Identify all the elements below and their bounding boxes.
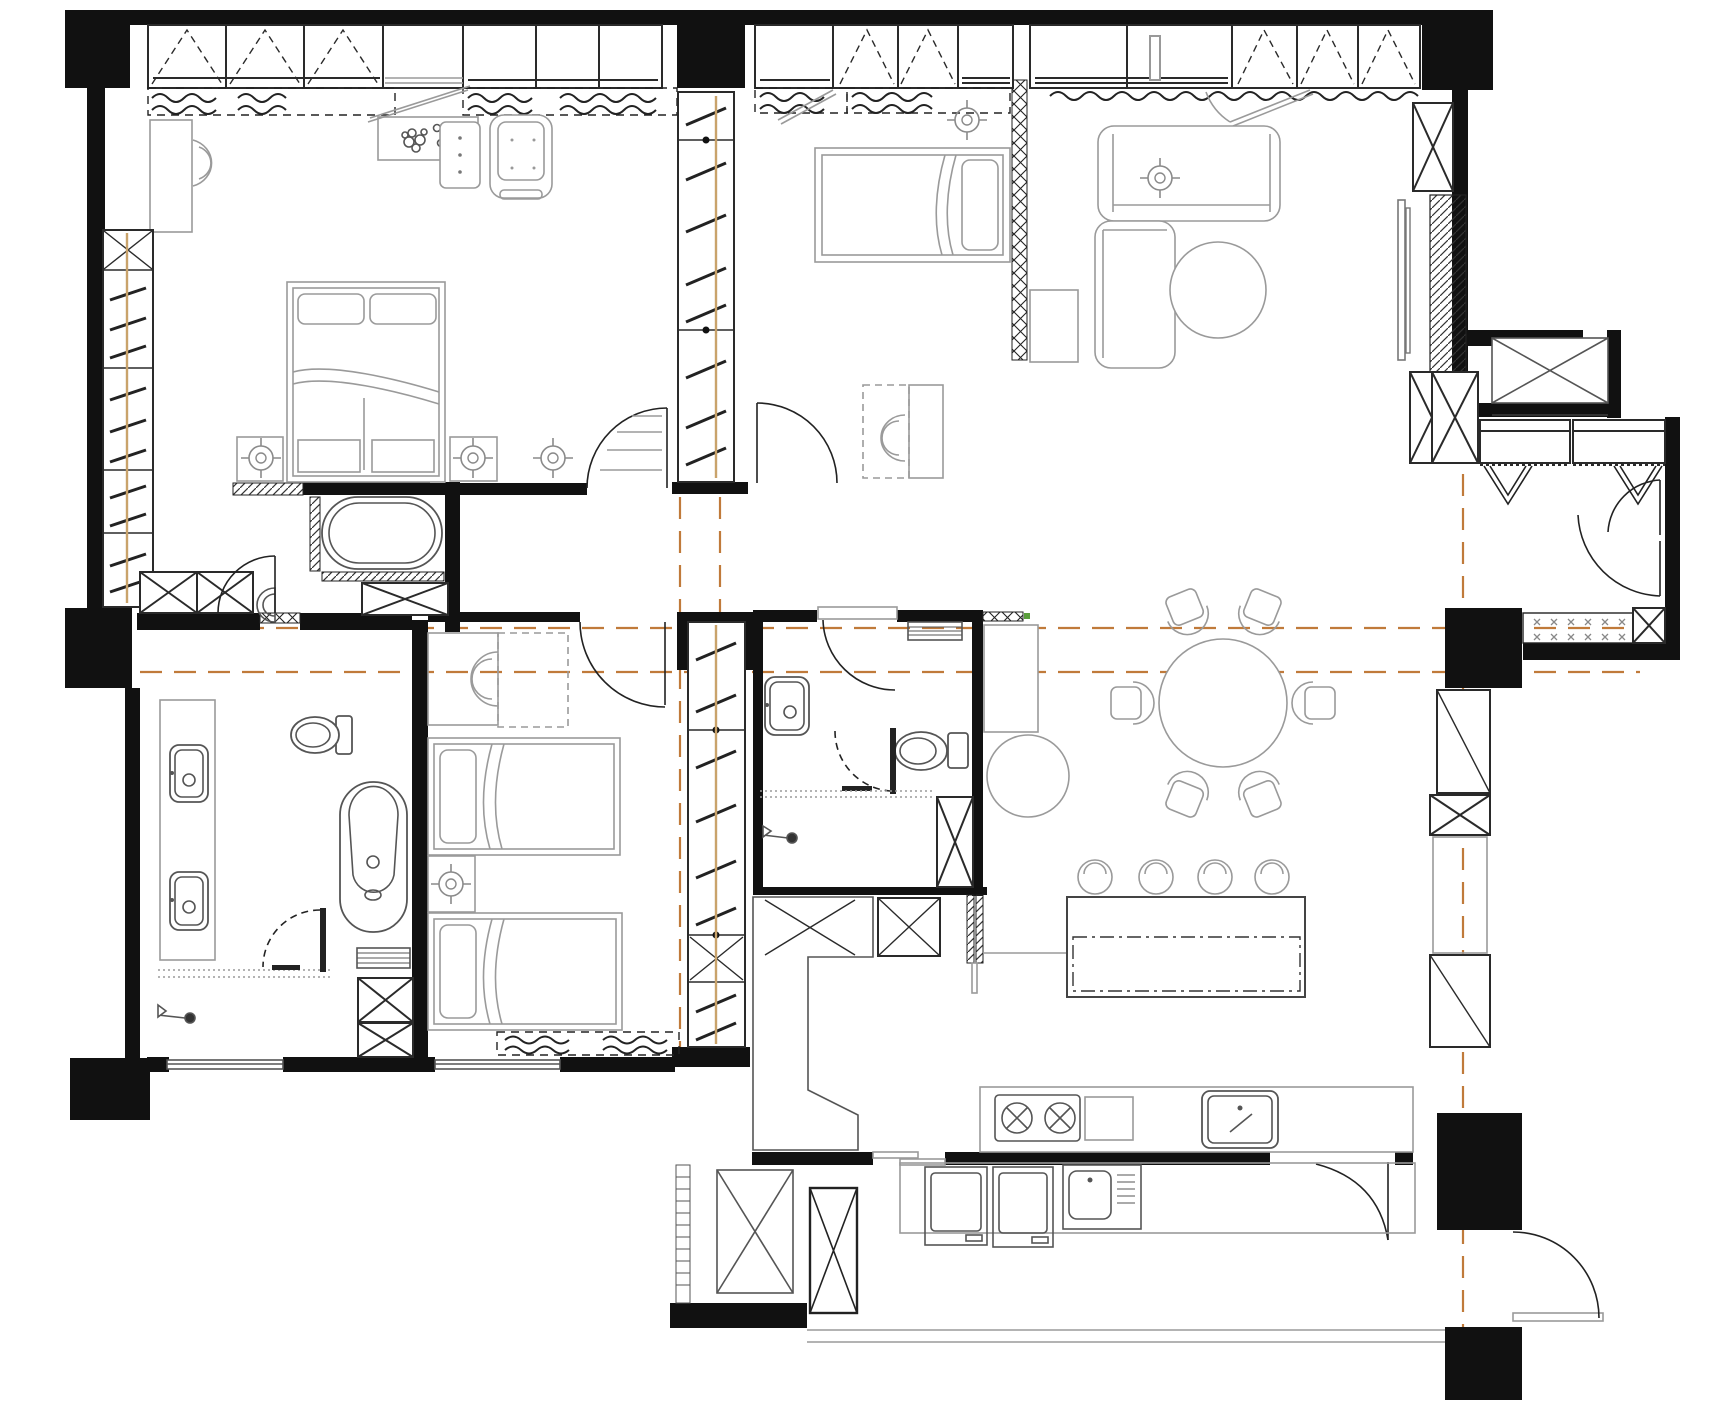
single-bed-bedroom2	[815, 148, 1010, 262]
central-sink	[765, 677, 809, 735]
entry-side-crossed-box	[1432, 372, 1478, 463]
vanity-sink-1	[170, 745, 208, 802]
bedroom2-low-cabinet	[1030, 290, 1078, 362]
room-dining	[984, 585, 1335, 820]
hob	[995, 1095, 1080, 1141]
hatched-media-wall	[1430, 195, 1466, 373]
central-bath-door	[818, 607, 897, 690]
toilet-bathroom2	[291, 716, 352, 754]
twin-bed-a	[428, 738, 620, 855]
bedroom2-desk	[863, 385, 943, 478]
bath-crossed-cabinet-row	[140, 572, 253, 613]
island-counter	[1067, 897, 1305, 997]
nightstand-left	[237, 437, 283, 481]
central-toilet	[895, 732, 968, 770]
bedroom2-door	[757, 403, 837, 483]
shoe-cabinet-left	[1480, 420, 1570, 465]
master-louver-door	[587, 408, 667, 488]
shower-head-2	[158, 1005, 195, 1023]
shoe-cabinet-right	[1573, 420, 1665, 465]
bar-stools	[1078, 860, 1289, 894]
living-window-run	[1030, 25, 1420, 88]
room-master-bathroom	[140, 497, 448, 622]
lattice-partition-upper	[678, 92, 734, 482]
twin-desk	[428, 633, 568, 727]
utility-crossed-cabinet-large	[717, 1170, 793, 1293]
vanity-sink-2	[170, 872, 208, 930]
freestanding-tub	[340, 782, 407, 932]
double-entry-door	[1578, 480, 1660, 596]
bedroom2-wardrobe	[755, 25, 1013, 88]
lattice-partition-lower	[688, 622, 745, 1047]
tv-panel	[1398, 200, 1410, 360]
upper-crossed-cabinets	[765, 898, 940, 956]
ladder-strip	[676, 1165, 690, 1303]
dresser	[440, 122, 480, 188]
entry-crossed-box	[1633, 608, 1665, 643]
room-twin-bedroom	[428, 633, 622, 1030]
floorplan-drawing	[0, 0, 1716, 1412]
double-bed	[287, 282, 445, 482]
laundry-sink	[1063, 1165, 1141, 1229]
room-bedroom-2	[755, 25, 1078, 478]
utility-crossed-cabinet-tall	[810, 1188, 857, 1313]
living-curtain	[1050, 90, 1418, 126]
entry-mat	[1523, 613, 1633, 643]
central-shower-head	[763, 826, 797, 843]
bottom-counter	[980, 1087, 1413, 1152]
built-in-oval-tub	[310, 497, 444, 581]
cabinet-door-v-symbols	[1484, 466, 1662, 504]
dryer	[993, 1167, 1053, 1247]
l-counter	[753, 897, 873, 1150]
nightstand-right	[450, 437, 497, 481]
armchair	[490, 115, 552, 199]
green-mark-1	[1024, 613, 1030, 619]
bathroom2-crossed-cabinets	[358, 978, 413, 1057]
round-ottoman	[1170, 242, 1266, 338]
pantry-column	[1430, 690, 1490, 1047]
floorplan-page	[0, 0, 1716, 1412]
utility-swing-door	[1316, 1162, 1388, 1240]
kitchen-sink	[1202, 1091, 1278, 1148]
vanity-desk	[150, 120, 212, 232]
dining-table	[1159, 639, 1287, 767]
room-central-bathroom	[760, 607, 983, 993]
media-wall-cabinet-top	[1413, 103, 1453, 191]
room-ac-balcony	[1492, 338, 1608, 415]
tub-side-crossed-cabinet	[362, 583, 448, 615]
central-bath-cabinet	[937, 797, 973, 887]
tall-shelving-closet	[103, 230, 153, 607]
room-living	[1030, 25, 1466, 463]
round-pouf	[987, 735, 1069, 817]
sideboard	[984, 625, 1038, 732]
service-door	[1513, 1232, 1603, 1321]
l-shaped-sofa	[1095, 126, 1280, 368]
twin-bed-b	[428, 913, 622, 1030]
twin-bedroom-door	[580, 622, 665, 707]
equipment-platform	[1492, 338, 1608, 415]
kitchen-pocket-door	[967, 895, 983, 993]
twin-curtain	[497, 1032, 679, 1055]
utility-railing	[807, 1330, 1447, 1342]
twin-nightstand	[428, 856, 475, 912]
